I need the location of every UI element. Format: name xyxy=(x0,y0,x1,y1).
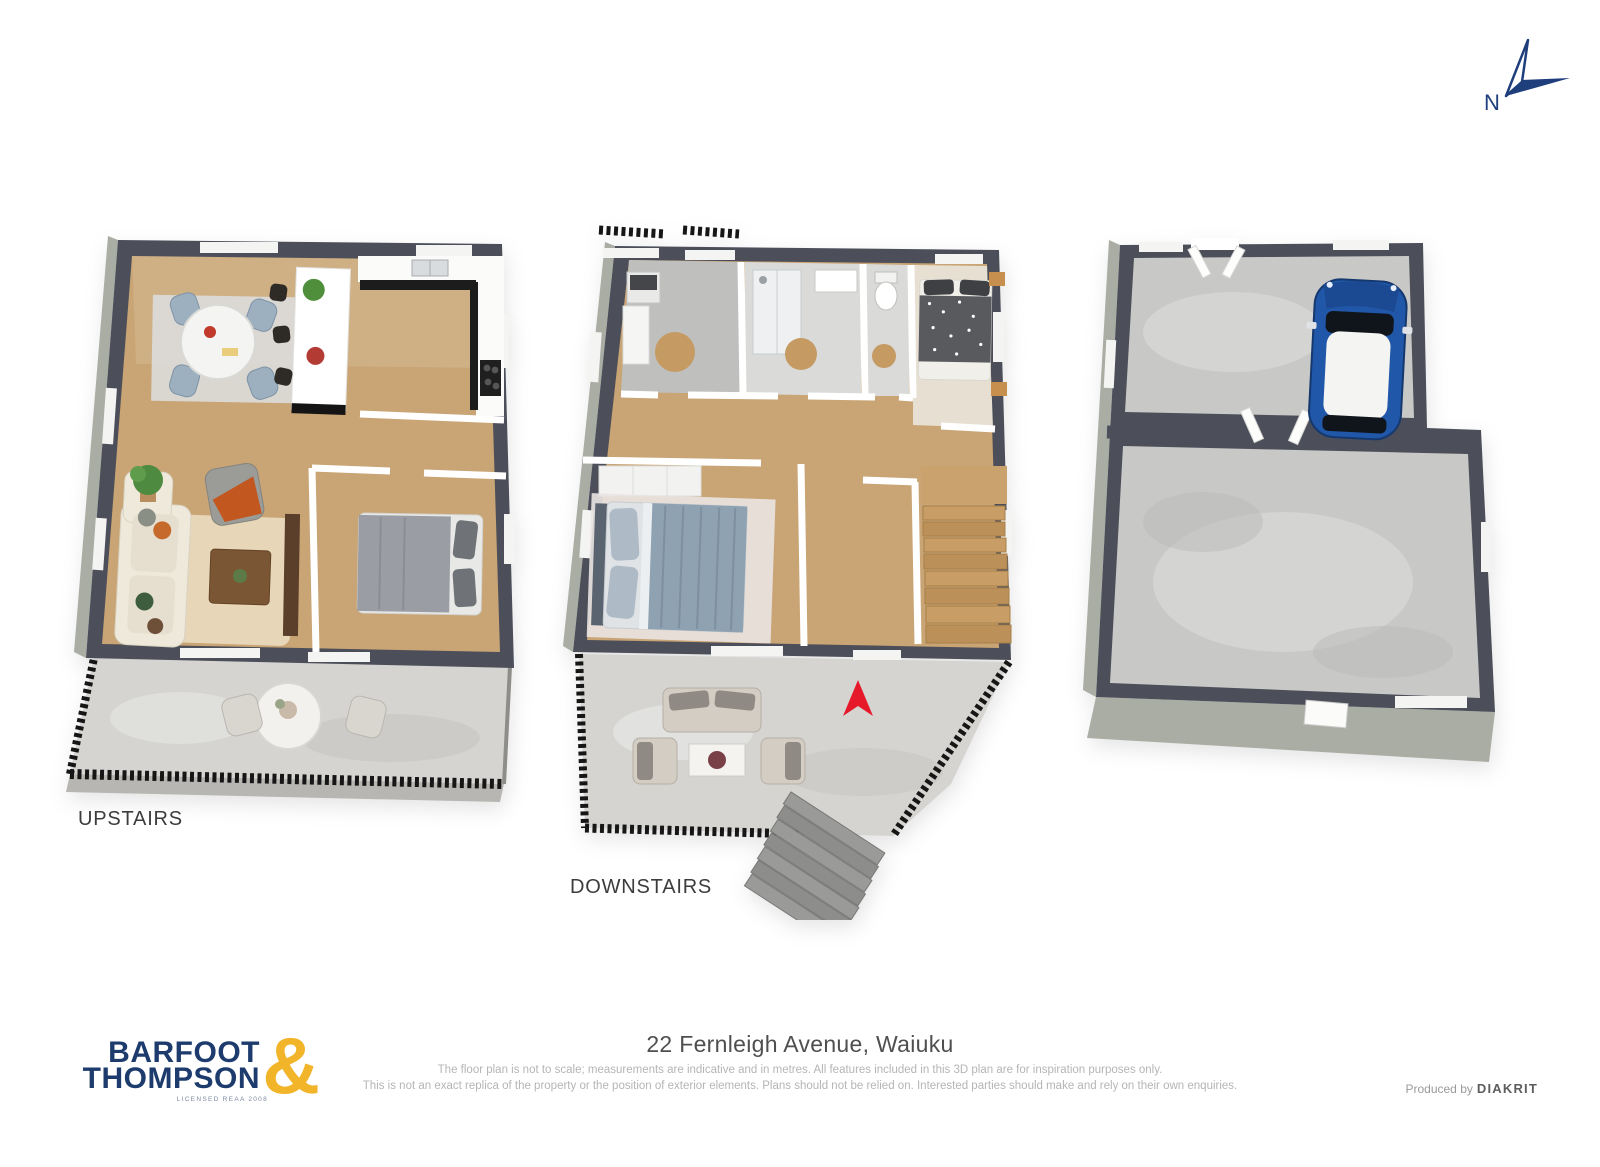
wc-mat xyxy=(872,344,896,368)
media-cabinet xyxy=(283,514,300,636)
coffee-table xyxy=(209,549,271,605)
kitchen-island xyxy=(291,267,350,415)
laundry-counter xyxy=(623,306,649,364)
armchair xyxy=(204,462,266,527)
north-compass: N xyxy=(1462,34,1582,118)
bathroom-vanity xyxy=(815,270,857,292)
floorplan-upstairs xyxy=(60,218,522,810)
bed xyxy=(357,513,483,615)
floorplan-sheet: N xyxy=(0,0,1600,1167)
laundry-mat xyxy=(655,332,695,372)
producer-name: DIAKRIT xyxy=(1477,1081,1538,1096)
produced-by-label: Produced by xyxy=(1405,1082,1472,1096)
outdoor-sofa xyxy=(663,688,761,732)
bath-mat xyxy=(785,338,817,370)
toilet xyxy=(875,272,897,310)
downstairs-label: DOWNSTAIRS xyxy=(570,876,712,899)
interior-stairs xyxy=(921,466,1011,643)
bed-master xyxy=(587,493,776,643)
dining-table xyxy=(181,305,255,379)
nightstand xyxy=(989,272,1005,286)
outdoor-coffee-table xyxy=(689,744,745,776)
car xyxy=(1301,278,1415,441)
logo-line2: THOMPSON xyxy=(83,1066,260,1092)
wardrobe xyxy=(599,466,701,496)
door-leaf xyxy=(1304,700,1348,728)
logo-ampersand-icon: & xyxy=(262,1030,320,1102)
cooktop xyxy=(480,360,501,396)
washing-machine xyxy=(627,272,660,303)
bed-guest xyxy=(918,279,992,381)
produced-by: Produced byDIAKRIT xyxy=(1405,1081,1538,1096)
north-arrow-icon xyxy=(1506,40,1570,96)
floorplan-garage xyxy=(1083,222,1523,782)
upstairs-label: UPSTAIRS xyxy=(78,808,183,831)
top-railing xyxy=(599,230,739,234)
nightstand xyxy=(991,382,1007,396)
barfoot-thompson-logo: BARFOOT THOMPSON & LICENSED REAA 2008 xyxy=(78,1038,318,1110)
floorplan-downstairs xyxy=(563,212,1045,920)
outdoor-table xyxy=(255,683,321,749)
north-label: N xyxy=(1484,90,1500,115)
logo-licensed-text: LICENSED REAA 2008 xyxy=(177,1096,268,1103)
